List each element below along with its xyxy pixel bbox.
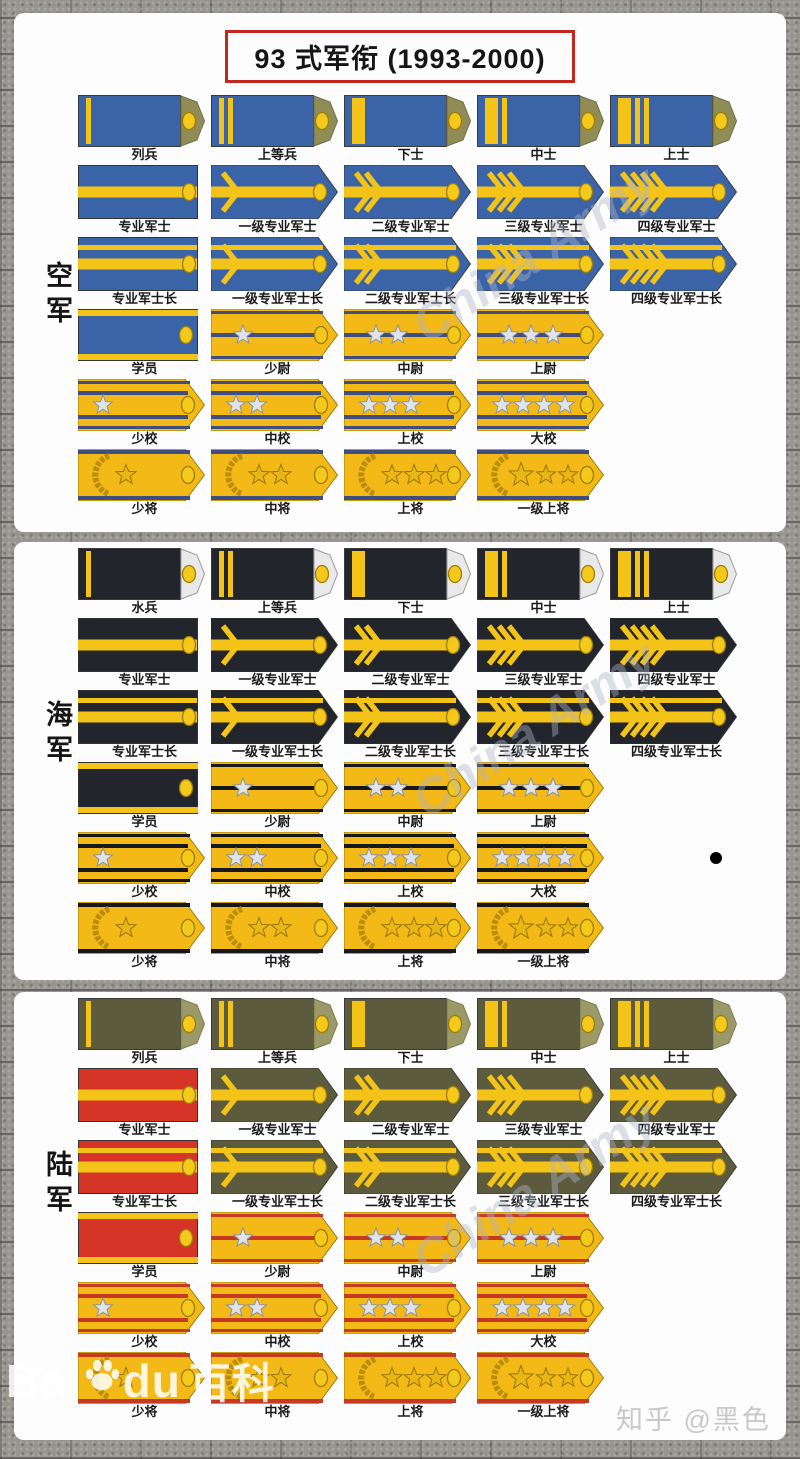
rank-label: 上等兵 — [258, 1050, 297, 1066]
rank-label: 水兵 — [131, 600, 157, 616]
rank-label: 一级专业军士长 — [232, 291, 323, 307]
rank-cell: 三级专业军士 — [477, 1068, 610, 1138]
rank-row-sergeant: 专业军士一级专业军士二级专业军士三级专业军士四级专业军士 — [14, 618, 786, 688]
epaulette-navy-r2c2 — [211, 618, 344, 672]
rank-cell: 上校 — [344, 379, 477, 447]
rank-cell: 四级专业军士长 — [610, 237, 743, 307]
rank-label: 中尉 — [397, 361, 423, 377]
rank-cell: 上士 — [610, 95, 743, 163]
rank-label: 二级专业军士长 — [365, 1194, 456, 1210]
epaulette-army-r3c2 — [211, 1140, 344, 1194]
epaulette-navy-r6c2 — [211, 902, 344, 954]
rank-label: 一级专业军士 — [238, 672, 316, 688]
epaulette-navy-r1c4 — [477, 548, 610, 600]
rank-row-enlisted: 水兵上等兵下士中士上士 — [14, 548, 786, 616]
epaulette-af-r1c5 — [610, 95, 743, 147]
epaulette-af-r2c1 — [78, 165, 211, 219]
epaulette-army-r6c4 — [477, 1352, 610, 1404]
epaulette-af-r6c1 — [78, 449, 211, 501]
epaulette-navy-r5c4 — [477, 832, 610, 884]
rank-label: 上等兵 — [258, 147, 297, 163]
rank-cell: 二级专业军士 — [344, 618, 477, 688]
epaulette-army-r2c4 — [477, 1068, 610, 1122]
rank-label: 专业军士长 — [112, 1194, 177, 1210]
epaulette-af-r1c3 — [344, 95, 477, 147]
epaulette-navy-r5c3 — [344, 832, 477, 884]
rank-label: 一级专业军士 — [238, 1122, 316, 1138]
epaulette-army-r4c2 — [211, 1212, 344, 1264]
rank-cell: 中尉 — [344, 309, 477, 377]
rank-cell: 学员 — [78, 1212, 211, 1280]
rank-row-sergeant: 专业军士一级专业军士二级专业军士三级专业军士四级专业军士 — [14, 165, 786, 235]
epaulette-army-r3c1 — [78, 1140, 211, 1194]
rank-cell: 上将 — [344, 1352, 477, 1420]
rank-cell: 中将 — [211, 902, 344, 970]
rank-cell: 一级专业军士 — [211, 618, 344, 688]
rank-cell: 少校 — [78, 832, 211, 900]
rank-cell: 少尉 — [211, 309, 344, 377]
rank-label: 少尉 — [264, 361, 290, 377]
zhihu-credit-watermark: 知乎 @黑色 — [616, 1398, 771, 1437]
epaulette-navy-r1c2 — [211, 548, 344, 600]
rank-label: 三级专业军士长 — [498, 1194, 589, 1210]
rank-label: 上士 — [663, 1050, 689, 1066]
rank-cell: 四级专业军士 — [610, 1068, 743, 1138]
rank-cell: 中校 — [211, 1282, 344, 1350]
epaulette-army-r3c5 — [610, 1140, 743, 1194]
rank-cell: 上等兵 — [211, 998, 344, 1066]
rank-label: 下士 — [397, 600, 423, 616]
baidu-baike-cn: 百科 — [189, 1350, 275, 1411]
baidu-text-prefix: Bai — [6, 1354, 81, 1408]
epaulette-af-r2c3 — [344, 165, 477, 219]
rank-label: 三级专业军士 — [504, 1122, 582, 1138]
epaulette-navy-r3c3 — [344, 690, 477, 744]
rank-label: 一级上将 — [517, 501, 569, 517]
rank-label: 上等兵 — [258, 600, 297, 616]
rank-label: 专业军士 — [118, 672, 170, 688]
epaulette-af-r2c5 — [610, 165, 743, 219]
rank-label: 中士 — [530, 1050, 556, 1066]
title-box: 93 式军衔 (1993-2000) — [225, 30, 574, 83]
rank-cell: 二级专业军士 — [344, 165, 477, 235]
rank-label: 中将 — [264, 501, 290, 517]
epaulette-navy-r4c2 — [211, 762, 344, 814]
epaulette-af-r3c1 — [78, 237, 211, 291]
rank-cell: 二级专业军士 — [344, 1068, 477, 1138]
rank-cell: 专业军士 — [78, 165, 211, 235]
rank-label: 少将 — [131, 954, 157, 970]
section-label-army: 陆军 — [38, 1150, 77, 1220]
rank-row-sergeant: 专业军士长一级专业军士长二级专业军士长三级专业军士长四级专业军士长 — [14, 237, 786, 307]
rank-cell: 三级专业军士 — [477, 165, 610, 235]
rank-label: 上将 — [397, 954, 423, 970]
rank-label: 专业军士长 — [112, 744, 177, 760]
rank-label: 少尉 — [264, 814, 290, 830]
rank-cell: 少将 — [78, 449, 211, 517]
rank-cell: 三级专业军士长 — [477, 690, 610, 760]
rank-cell: 专业军士长 — [78, 690, 211, 760]
epaulette-af-r4c1 — [78, 309, 211, 361]
rank-label: 二级专业军士长 — [365, 744, 456, 760]
rank-label: 四级专业军士 — [637, 672, 715, 688]
rank-infographic: 93 式军衔 (1993-2000) 空军 列兵上等兵下士中士上士专业军士一级专… — [0, 0, 800, 1459]
rank-cell: 一级专业军士 — [211, 165, 344, 235]
rank-label: 中尉 — [397, 1264, 423, 1280]
rank-label: 上将 — [397, 1404, 423, 1420]
epaulette-af-r5c1 — [78, 379, 211, 431]
epaulette-af-r3c5 — [610, 237, 743, 291]
rank-label: 少校 — [131, 1334, 157, 1350]
epaulette-army-r2c5 — [610, 1068, 743, 1122]
rank-cell: 水兵 — [78, 548, 211, 616]
epaulette-navy-r4c3 — [344, 762, 477, 814]
rank-cell: 专业军士 — [78, 618, 211, 688]
epaulette-navy-r2c5 — [610, 618, 743, 672]
rank-label: 上校 — [397, 431, 423, 447]
epaulette-af-r4c3 — [344, 309, 477, 361]
rank-label: 中将 — [264, 954, 290, 970]
epaulette-army-r4c1 — [78, 1212, 211, 1264]
rank-cell: 中校 — [211, 379, 344, 447]
rank-label: 专业军士长 — [112, 291, 177, 307]
rank-label: 学员 — [131, 814, 157, 830]
rank-label: 学员 — [131, 361, 157, 377]
rank-cell: 四级专业军士 — [610, 165, 743, 235]
rank-cell: 列兵 — [78, 95, 211, 163]
rank-cell: 下士 — [344, 95, 477, 163]
rank-label: 上校 — [397, 1334, 423, 1350]
rank-cell: 一级上将 — [477, 1352, 610, 1420]
rank-row-enlisted: 列兵上等兵下士中士上士 — [14, 95, 786, 163]
rank-label: 中尉 — [397, 814, 423, 830]
section-label-airforce: 空军 — [38, 261, 77, 331]
epaulette-army-r1c2 — [211, 998, 344, 1050]
rank-row-company: 学员少尉中尉上尉 — [14, 762, 786, 830]
epaulette-army-r3c4 — [477, 1140, 610, 1194]
rank-cell: 少校 — [78, 1282, 211, 1350]
rank-row-company: 学员少尉中尉上尉 — [14, 309, 786, 377]
rank-label: 四级专业军士长 — [631, 744, 722, 760]
epaulette-army-r6c3 — [344, 1352, 477, 1404]
rank-row-field: 少校中校上校大校 — [14, 379, 786, 447]
epaulette-navy-r3c4 — [477, 690, 610, 744]
epaulette-navy-r1c1 — [78, 548, 211, 600]
rank-cell: 学员 — [78, 762, 211, 830]
rank-label: 专业军士 — [118, 1122, 170, 1138]
epaulette-af-r3c2 — [211, 237, 344, 291]
rank-cell: 上士 — [610, 548, 743, 616]
rank-cell: 三级专业军士长 — [477, 1140, 610, 1210]
rank-cell: 二级专业军士长 — [344, 237, 477, 307]
epaulette-army-r3c3 — [344, 1140, 477, 1194]
epaulette-af-r1c1 — [78, 95, 211, 147]
epaulette-navy-r5c1 — [78, 832, 211, 884]
rank-cell: 上尉 — [477, 309, 610, 377]
epaulette-navy-r4c1 — [78, 762, 211, 814]
rank-row-sergeant: 专业军士长一级专业军士长二级专业军士长三级专业军士长四级专业军士长 — [14, 1140, 786, 1210]
page-title: 93 式军衔 (1993-2000) — [254, 44, 545, 74]
rank-label: 三级专业军士 — [504, 672, 582, 688]
rank-cell: 三级专业军士 — [477, 618, 610, 688]
epaulette-navy-r2c1 — [78, 618, 211, 672]
rank-cell: 大校 — [477, 379, 610, 447]
rank-label: 上尉 — [530, 361, 556, 377]
epaulette-navy-r6c4 — [477, 902, 610, 954]
rank-cell: 上校 — [344, 832, 477, 900]
rank-label: 中校 — [264, 431, 290, 447]
rank-cell: 四级专业军士长 — [610, 690, 743, 760]
epaulette-af-r5c2 — [211, 379, 344, 431]
rank-label: 少将 — [131, 501, 157, 517]
rank-cell: 一级上将 — [477, 902, 610, 970]
epaulette-army-r2c2 — [211, 1068, 344, 1122]
epaulette-af-r5c3 — [344, 379, 477, 431]
rank-label: 少校 — [131, 884, 157, 900]
epaulette-army-r5c3 — [344, 1282, 477, 1334]
rank-row-field: 少校中校上校大校 — [14, 832, 786, 900]
epaulette-navy-r4c4 — [477, 762, 610, 814]
rank-cell: 少尉 — [211, 1212, 344, 1280]
stray-dot — [710, 852, 722, 864]
rank-cell: 少将 — [78, 902, 211, 970]
rank-label: 专业军士 — [118, 219, 170, 235]
epaulette-army-r4c4 — [477, 1212, 610, 1264]
rank-label: 三级专业军士长 — [498, 744, 589, 760]
rank-cell: 大校 — [477, 832, 610, 900]
epaulette-navy-r3c2 — [211, 690, 344, 744]
rank-label: 大校 — [530, 1334, 556, 1350]
epaulette-army-r5c2 — [211, 1282, 344, 1334]
section-label-navy: 海军 — [38, 700, 77, 770]
rank-label: 大校 — [530, 431, 556, 447]
rank-cell: 下士 — [344, 548, 477, 616]
baidu-baike-watermark: Bai du 百科 — [6, 1350, 275, 1411]
rank-label: 二级专业军士 — [371, 672, 449, 688]
rank-cell: 学员 — [78, 309, 211, 377]
rank-cell: 中校 — [211, 832, 344, 900]
section-airforce: 93 式军衔 (1993-2000) 空军 列兵上等兵下士中士上士专业军士一级专… — [14, 13, 786, 532]
rank-label: 四级专业军士长 — [631, 1194, 722, 1210]
epaulette-army-r1c5 — [610, 998, 743, 1050]
rank-cell: 少校 — [78, 379, 211, 447]
rank-label: 上士 — [663, 600, 689, 616]
rank-cell: 上将 — [344, 902, 477, 970]
rank-cell: 三级专业军士长 — [477, 237, 610, 307]
rank-cell: 中尉 — [344, 1212, 477, 1280]
rank-label: 中士 — [530, 600, 556, 616]
rank-label: 上尉 — [530, 1264, 556, 1280]
rank-label: 一级上将 — [517, 1404, 569, 1420]
epaulette-af-r6c2 — [211, 449, 344, 501]
rank-cell: 一级专业军士长 — [211, 690, 344, 760]
rank-label: 大校 — [530, 884, 556, 900]
epaulette-af-r4c2 — [211, 309, 344, 361]
epaulette-army-r2c1 — [78, 1068, 211, 1122]
epaulette-navy-r1c3 — [344, 548, 477, 600]
epaulette-af-r1c2 — [211, 95, 344, 147]
rank-row-field: 少校中校上校大校 — [14, 1282, 786, 1350]
rank-label: 三级专业军士长 — [498, 291, 589, 307]
rank-label: 下士 — [397, 1050, 423, 1066]
rank-cell: 中士 — [477, 998, 610, 1066]
rank-label: 列兵 — [131, 1050, 157, 1066]
rank-cell: 大校 — [477, 1282, 610, 1350]
rank-row-enlisted: 列兵上等兵下士中士上士 — [14, 998, 786, 1066]
rank-cell: 一级专业军士长 — [211, 237, 344, 307]
rank-cell: 上等兵 — [211, 95, 344, 163]
rank-row-sergeant: 专业军士一级专业军士二级专业军士三级专业军士四级专业军士 — [14, 1068, 786, 1138]
rank-label: 学员 — [131, 1264, 157, 1280]
rank-cell: 上尉 — [477, 1212, 610, 1280]
rank-cell: 一级专业军士长 — [211, 1140, 344, 1210]
epaulette-army-r1c4 — [477, 998, 610, 1050]
rank-label: 中校 — [264, 1334, 290, 1350]
epaulette-army-r2c3 — [344, 1068, 477, 1122]
epaulette-af-r5c4 — [477, 379, 610, 431]
rank-label: 上尉 — [530, 814, 556, 830]
rank-label: 中校 — [264, 884, 290, 900]
epaulette-navy-r3c1 — [78, 690, 211, 744]
rank-cell: 上士 — [610, 998, 743, 1066]
rank-cell: 四级专业军士长 — [610, 1140, 743, 1210]
epaulette-af-r2c2 — [211, 165, 344, 219]
rank-label: 四级专业军士 — [637, 1122, 715, 1138]
rank-cell: 一级专业军士 — [211, 1068, 344, 1138]
epaulette-army-r1c1 — [78, 998, 211, 1050]
rank-cell: 中尉 — [344, 762, 477, 830]
rank-label: 二级专业军士 — [371, 219, 449, 235]
epaulette-army-r1c3 — [344, 998, 477, 1050]
rank-cell: 中士 — [477, 548, 610, 616]
rank-cell: 上校 — [344, 1282, 477, 1350]
rank-cell: 专业军士长 — [78, 237, 211, 307]
rank-label: 四级专业军士长 — [631, 291, 722, 307]
rank-cell: 二级专业军士长 — [344, 1140, 477, 1210]
rank-label: 一级专业军士长 — [232, 1194, 323, 1210]
epaulette-navy-r2c4 — [477, 618, 610, 672]
rank-label: 上士 — [663, 147, 689, 163]
rank-row-general: 少将中将上将一级上将 — [14, 902, 786, 970]
rank-cell: 下士 — [344, 998, 477, 1066]
rank-label: 上校 — [397, 884, 423, 900]
epaulette-army-r5c4 — [477, 1282, 610, 1334]
epaulette-af-r4c4 — [477, 309, 610, 361]
rank-label: 中士 — [530, 147, 556, 163]
rank-label: 少尉 — [264, 1264, 290, 1280]
epaulette-navy-r2c3 — [344, 618, 477, 672]
section-navy: 海军 水兵上等兵下士中士上士专业军士一级专业军士二级专业军士三级专业军士四级专业… — [14, 542, 786, 980]
rank-cell: 少尉 — [211, 762, 344, 830]
epaulette-af-r1c4 — [477, 95, 610, 147]
rank-row-company: 学员少尉中尉上尉 — [14, 1212, 786, 1280]
rank-label: 一级专业军士长 — [232, 744, 323, 760]
rank-cell: 上尉 — [477, 762, 610, 830]
rank-label: 三级专业军士 — [504, 219, 582, 235]
rank-cell: 一级上将 — [477, 449, 610, 517]
baidu-text-suffix: du — [123, 1354, 181, 1408]
rank-cell: 专业军士 — [78, 1068, 211, 1138]
rank-cell: 二级专业军士长 — [344, 690, 477, 760]
epaulette-army-r4c3 — [344, 1212, 477, 1264]
rank-row-sergeant: 专业军士长一级专业军士长二级专业军士长三级专业军士长四级专业军士长 — [14, 690, 786, 760]
rank-label: 下士 — [397, 147, 423, 163]
rank-label: 二级专业军士长 — [365, 291, 456, 307]
rank-cell: 列兵 — [78, 998, 211, 1066]
epaulette-af-r3c3 — [344, 237, 477, 291]
rank-label: 四级专业军士 — [637, 219, 715, 235]
epaulette-af-r6c4 — [477, 449, 610, 501]
rank-cell: 上等兵 — [211, 548, 344, 616]
epaulette-navy-r3c5 — [610, 690, 743, 744]
epaulette-navy-r5c2 — [211, 832, 344, 884]
rank-cell: 上将 — [344, 449, 477, 517]
rank-cell: 四级专业军士 — [610, 618, 743, 688]
rank-label: 少校 — [131, 431, 157, 447]
rank-label: 列兵 — [131, 147, 157, 163]
rank-row-general: 少将中将上将一级上将 — [14, 449, 786, 517]
epaulette-navy-r6c1 — [78, 902, 211, 954]
rank-label: 上将 — [397, 501, 423, 517]
rank-cell: 专业军士长 — [78, 1140, 211, 1210]
epaulette-af-r6c3 — [344, 449, 477, 501]
rank-label: 二级专业军士 — [371, 1122, 449, 1138]
airforce-rank-rows: 列兵上等兵下士中士上士专业军士一级专业军士二级专业军士三级专业军士四级专业军士专… — [14, 95, 786, 519]
epaulette-navy-r6c3 — [344, 902, 477, 954]
rank-cell: 中士 — [477, 95, 610, 163]
rank-cell: 中将 — [211, 449, 344, 517]
baidu-paw-icon — [83, 1357, 121, 1395]
rank-label: 一级专业军士 — [238, 219, 316, 235]
epaulette-army-r5c1 — [78, 1282, 211, 1334]
epaulette-af-r2c4 — [477, 165, 610, 219]
navy-rank-rows: 水兵上等兵下士中士上士专业军士一级专业军士二级专业军士三级专业军士四级专业军士专… — [14, 542, 786, 972]
epaulette-af-r3c4 — [477, 237, 610, 291]
rank-label: 一级上将 — [517, 954, 569, 970]
epaulette-navy-r1c5 — [610, 548, 743, 600]
